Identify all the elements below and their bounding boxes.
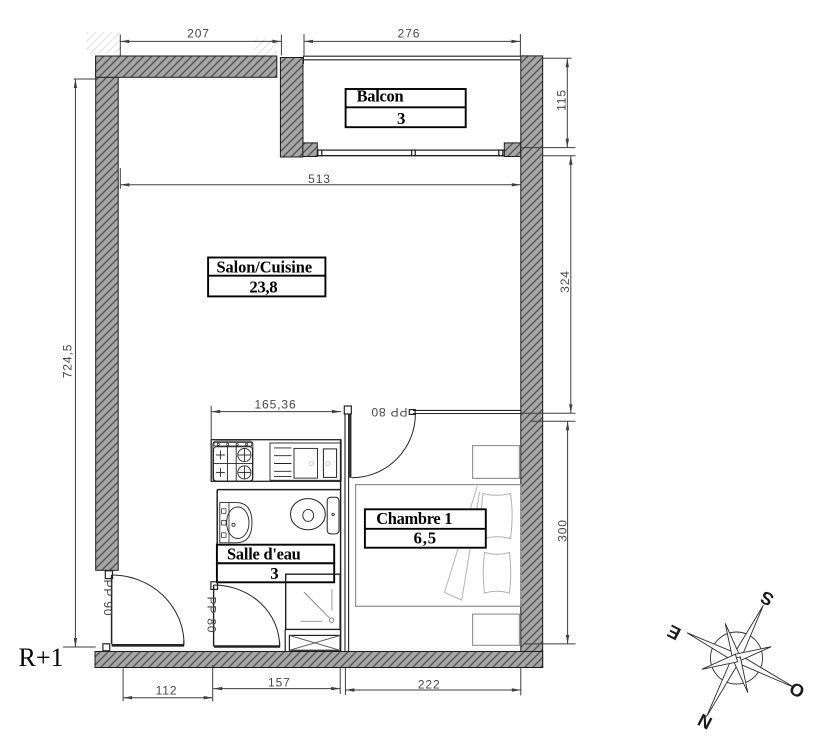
svg-text:Chambre 1: Chambre 1 [376, 509, 452, 528]
svg-text:R+1: R+1 [19, 643, 64, 672]
svg-text:PP 80: PP 80 [205, 597, 219, 634]
svg-text:513: 513 [308, 172, 331, 186]
svg-text:165,36: 165,36 [254, 398, 296, 412]
svg-text:6,5: 6,5 [414, 529, 437, 548]
svg-text:PP 80: PP 80 [371, 405, 408, 419]
svg-text:Salon/Cuisine: Salon/Cuisine [217, 258, 313, 277]
svg-text:3: 3 [270, 564, 278, 583]
svg-text:157: 157 [268, 676, 291, 690]
svg-text:300: 300 [556, 519, 570, 542]
svg-text:3: 3 [397, 109, 405, 128]
svg-text:115: 115 [555, 89, 569, 111]
svg-text:222: 222 [418, 677, 441, 691]
svg-text:276: 276 [398, 27, 421, 41]
svg-text:PP 90: PP 90 [101, 580, 115, 617]
svg-text:Salle d'eau: Salle d'eau [227, 544, 301, 563]
svg-text:207: 207 [187, 27, 210, 41]
svg-text:23,8: 23,8 [249, 278, 277, 297]
svg-text:724,5: 724,5 [61, 344, 75, 379]
svg-text:Balcon: Balcon [357, 87, 404, 106]
svg-text:112: 112 [156, 684, 178, 698]
svg-text:324: 324 [558, 270, 572, 293]
